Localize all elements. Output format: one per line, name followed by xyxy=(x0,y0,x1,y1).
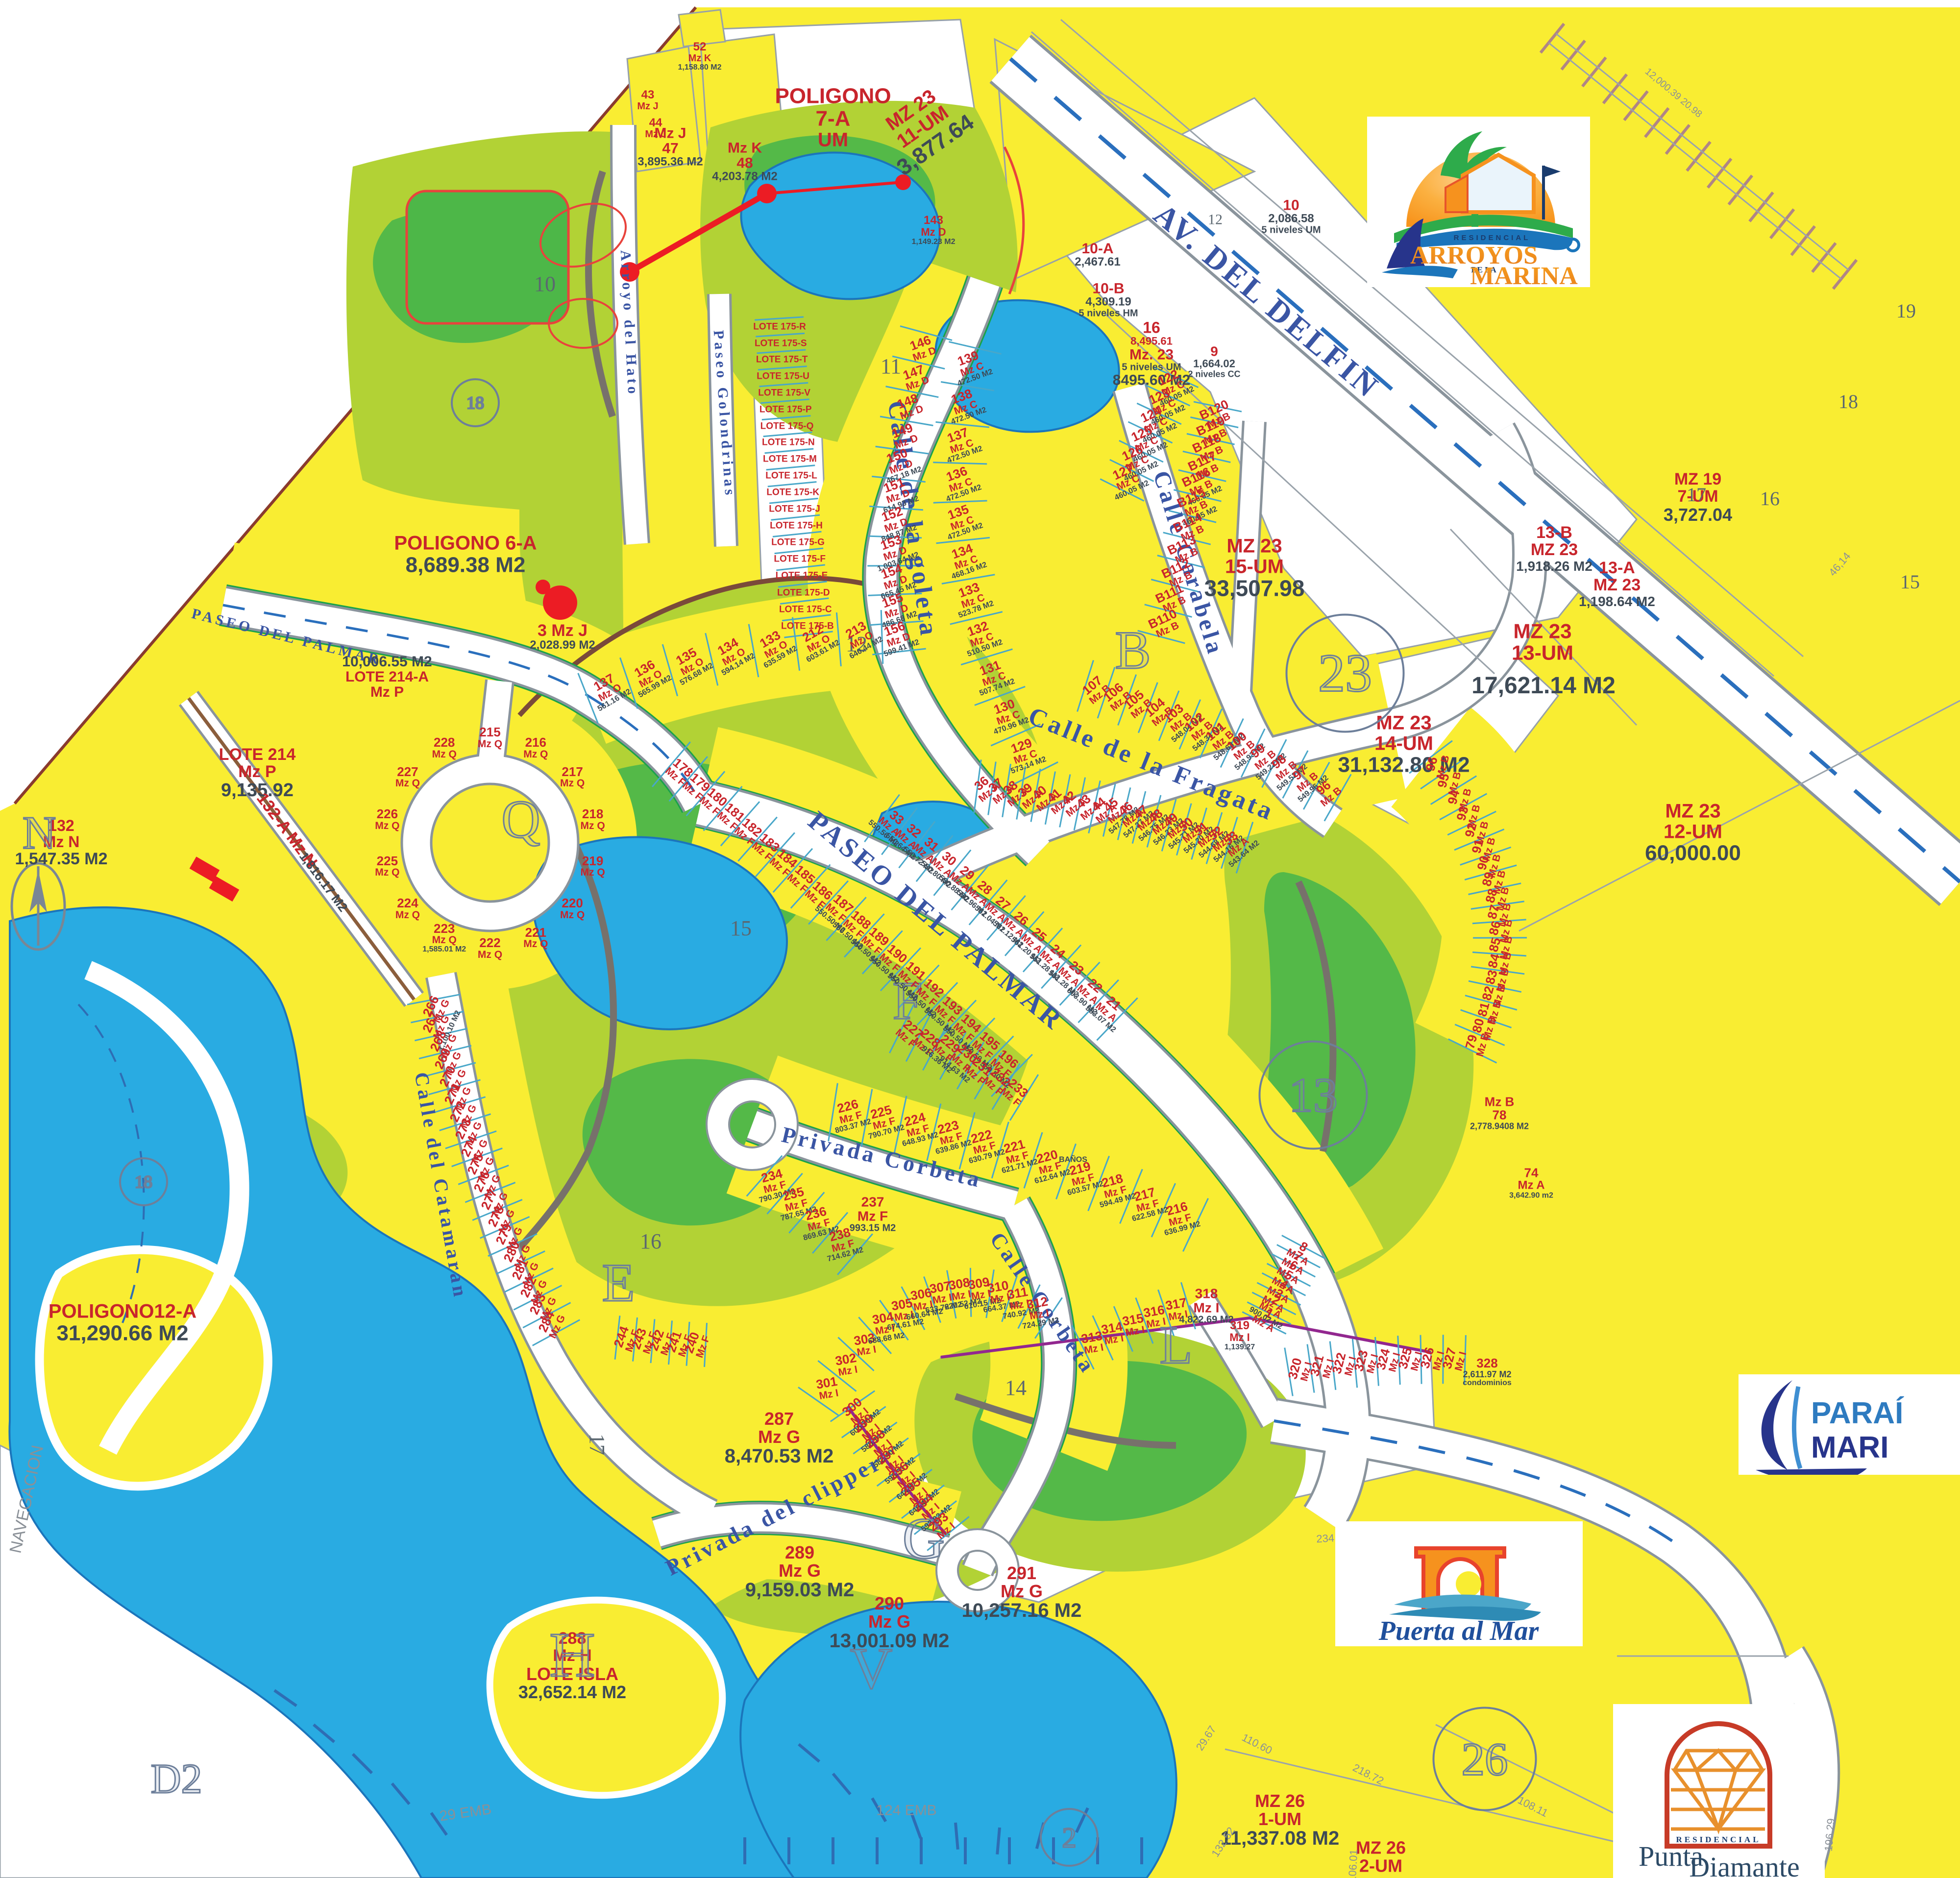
logo-arroyos-de-la-marina: RESIDENCIAL ARROYOS DE LA MARINA xyxy=(1367,117,1590,287)
map-label: 289Mz G9,159.03 M2 xyxy=(745,1543,854,1600)
lot-label: 222Mz Q xyxy=(478,936,502,960)
section-letter: V xyxy=(850,1639,893,1698)
map-label: 15 xyxy=(1900,572,1920,592)
lot-divider xyxy=(771,515,819,520)
lot-label: LOTE 175-J xyxy=(769,505,820,514)
lot-divider xyxy=(758,366,807,370)
lot-label: LOTE 175-V xyxy=(758,388,810,397)
lot-divider xyxy=(763,432,812,436)
railroad-rail xyxy=(1556,34,1849,270)
map-label: POLIGONO7-AUM xyxy=(775,85,891,150)
marina-text: MARI xyxy=(1811,1431,1888,1464)
railroad-tick xyxy=(1750,193,1773,221)
lot-label: LOTE 175-E xyxy=(776,571,828,581)
map-label: Mz B782,778.9408 M2 xyxy=(1470,1096,1529,1131)
lot-label: 217Mz Q xyxy=(560,765,585,789)
lot-label: 219Mz Q xyxy=(581,854,605,878)
lot-label: LOTE 175-P xyxy=(759,405,812,414)
pier-tick xyxy=(353,1754,372,1773)
lot-divider xyxy=(768,482,817,487)
map-label: 106.01 xyxy=(1347,1849,1360,1878)
lot-divider xyxy=(765,449,814,453)
map-label: 52Mz K1,158.80 M2 xyxy=(678,41,722,72)
lot-divider xyxy=(780,598,829,604)
lot-divider xyxy=(759,383,808,387)
diamante-text: Diamante xyxy=(1689,1851,1799,1878)
map-label: MZ 2313-UM xyxy=(1512,620,1573,663)
section-letter: E xyxy=(602,1256,635,1310)
lot-label: LOTE 175-Q xyxy=(760,421,814,431)
lot-divider xyxy=(760,399,809,403)
map-label: 10-A2,467.61 xyxy=(1075,241,1120,268)
lot-divider xyxy=(933,501,987,503)
lot-label: LOTE 175-F xyxy=(774,555,826,564)
lot-label: LOTE 175-C xyxy=(779,605,832,614)
railroad-tick xyxy=(1562,41,1585,70)
railroad-tick xyxy=(1833,260,1857,289)
pier-tick xyxy=(833,1774,850,1794)
logo-puerta-al-mar: Puerta al Mar xyxy=(1335,1521,1583,1646)
map-label: 10 xyxy=(534,273,556,295)
map-label: 17,621.14 M2 xyxy=(1471,674,1616,698)
map-label: 10,006.55 M2LOTE 214-AMz P xyxy=(342,654,432,700)
map-label: 19 xyxy=(1896,301,1916,321)
lot-label: LOTE 175-L xyxy=(765,471,817,481)
railroad-tick xyxy=(1791,226,1815,255)
lot-label: 314Mz I xyxy=(1101,1320,1126,1347)
lot-label: 220Mz Q xyxy=(560,897,585,920)
railroad-tick xyxy=(1603,74,1627,103)
map-label: 12 xyxy=(1208,212,1223,227)
map-label: MZ 262-UM xyxy=(1356,1839,1406,1876)
lot-divider xyxy=(755,317,804,320)
lot-label: 226Mz Q xyxy=(375,807,399,831)
lot-label: LOTE 175-U xyxy=(757,371,809,381)
lot-divider xyxy=(773,532,821,537)
map-label: POLIGONO12-A31,290.66 M2 xyxy=(49,1301,196,1344)
railroad-tick xyxy=(1770,209,1794,238)
map-label: 16 xyxy=(1760,488,1780,509)
puerta-al-mar-text: Puerta al Mar xyxy=(1378,1616,1540,1646)
lot-divider xyxy=(933,463,987,464)
lot-label: 215Mz Q xyxy=(478,726,502,749)
logo-residencial-text: RESIDENCIAL xyxy=(1454,234,1531,242)
master-plan-map: AV. DEL DELFINPASEO DEL PALMARPASEO DEL … xyxy=(0,0,1960,1878)
lot-label: 221Mz Q xyxy=(523,926,548,950)
logo-marina-text: MARINA xyxy=(1470,262,1578,287)
lot-label: 216Mz Q xyxy=(523,736,548,759)
lot-label: LOTE 175-N xyxy=(762,438,815,447)
circled-number: 13 xyxy=(1259,1041,1368,1150)
map-label: 13-AMZ 231,198.64 M2 xyxy=(1579,560,1655,609)
circled-number: 18 xyxy=(451,378,500,427)
lot-label: 315Mz I xyxy=(1121,1311,1146,1338)
railroad-tick xyxy=(1624,91,1648,120)
lot-label: LOTE 175-M xyxy=(763,455,817,464)
lot-divider xyxy=(776,565,825,570)
map-label: 124 EMB xyxy=(876,1803,936,1818)
map-label: LOTE 214Mz P9,135.92 xyxy=(219,746,296,800)
map-label: Mz K484,203.78 M2 xyxy=(712,140,777,183)
section-letter: H xyxy=(549,1623,595,1687)
circled-number: 18 xyxy=(119,1157,168,1206)
lot-divider xyxy=(778,582,827,587)
railroad-tick xyxy=(1812,243,1836,272)
railroad-tick xyxy=(1666,125,1690,154)
map-label: 15 xyxy=(730,917,752,940)
lot-label: LOTE 175-R xyxy=(753,322,806,331)
section-letter: Q xyxy=(501,792,540,846)
lot-divider xyxy=(769,498,818,503)
railroad-tick xyxy=(1541,24,1564,52)
map-label: 17 xyxy=(586,1434,608,1455)
lot-label: LOTE 175-S xyxy=(755,339,807,348)
map-label: 44Mz J xyxy=(645,117,666,140)
map-label: 319Mz I1,139.27 xyxy=(1225,1320,1255,1351)
map-label: 16 xyxy=(640,1230,661,1253)
lot-label: 317Mz I xyxy=(1165,1296,1190,1323)
lot-label: 316Mz I xyxy=(1143,1303,1168,1330)
lot-label: LOTE 175-T xyxy=(756,355,808,365)
lot-label: 224Mz Q xyxy=(395,897,420,920)
lot-label: LOTE 175-B xyxy=(781,621,834,631)
lot-label: LOTE 175-K xyxy=(766,488,819,497)
section-letter: B xyxy=(1115,623,1151,677)
lot-label: LOTE 175-H xyxy=(770,521,823,531)
map-label: 18 xyxy=(1838,391,1858,412)
circled-number: 23 xyxy=(1286,614,1405,733)
map-label: 287Mz G8,470.53 M2 xyxy=(725,1410,833,1466)
map-label: 14 xyxy=(1005,1377,1027,1399)
lot-label: 301Mz I xyxy=(815,1375,840,1402)
map-label: 3282,611.97 M2condominios xyxy=(1463,1357,1512,1387)
section-letter: D2 xyxy=(150,1757,202,1800)
paraiso-text: PARAÍ xyxy=(1811,1396,1904,1430)
section-letter: N xyxy=(23,810,56,856)
map-label: 17 xyxy=(1687,485,1706,505)
railroad-rail xyxy=(1548,43,1841,279)
map-label: MZ 2315-UM33,507.98 xyxy=(1204,536,1305,600)
golf-flag-icon xyxy=(1543,166,1561,177)
map-label: 291Mz G10,257.16 M2 xyxy=(962,1564,1082,1621)
lot-label: 218Mz Q xyxy=(581,807,605,831)
map-label: 10-B4,309.195 niveles HM xyxy=(1078,281,1138,319)
railroad-tick xyxy=(1729,175,1752,204)
map-label: 91,664.022 niveles CC xyxy=(1188,344,1240,379)
sun-icon xyxy=(1456,1571,1481,1597)
railroad-tick xyxy=(1645,108,1668,137)
pier-tick xyxy=(997,1828,1000,1854)
railroad-tick xyxy=(1708,159,1731,188)
pier-tick xyxy=(274,1690,296,1706)
map-label: MZ 2312-UM60,000.00 xyxy=(1645,802,1741,865)
logo-punta-diamante: RESIDENCIAL Punta Diamante xyxy=(1613,1704,1825,1878)
map-label: 74Mz A3,642.90 m2 xyxy=(1509,1167,1553,1200)
railroad-tick xyxy=(1687,142,1711,171)
map-label: 3 Mz J2,028.99 M2 xyxy=(530,622,595,652)
pier-tick xyxy=(955,1823,958,1850)
lot-label: LOTE 175-G xyxy=(771,538,825,547)
logo-paraiso-marina: PARAÍ MARI xyxy=(1739,1374,1960,1475)
lot-divider xyxy=(756,333,805,337)
map-label: 102,086.585 niveles UM xyxy=(1261,198,1321,236)
lot-divider xyxy=(766,465,815,470)
map-label: MZ 261-UM11,337.08 M2 xyxy=(1221,1792,1339,1849)
lot-label: 225Mz Q xyxy=(375,854,399,878)
map-label: POLIGONO 6-A8,689.38 M2 xyxy=(394,533,537,576)
lot-divider xyxy=(762,416,811,420)
lot-label: LOTE 175-D xyxy=(777,588,830,597)
pier-tick xyxy=(799,1744,819,1761)
lot-label: 223Mz Q1,585.01 M2 xyxy=(422,922,466,953)
pier-tick xyxy=(314,1725,334,1742)
diamond-icon xyxy=(1671,1751,1765,1829)
map-label: 43Mz J xyxy=(637,89,658,112)
lot-label: 228Mz Q xyxy=(432,736,457,759)
lot-divider xyxy=(936,537,990,543)
lot-label: 302Mz I xyxy=(834,1351,859,1378)
lot-divider xyxy=(775,548,823,554)
map-label: 143Mz D1,149.23 M2 xyxy=(912,215,955,246)
map-label: 11 xyxy=(881,355,901,378)
pier-tick xyxy=(392,1783,409,1804)
lot-label: 227Mz Q xyxy=(395,765,420,789)
railroad-tick xyxy=(1582,57,1606,86)
circled-number: 2 xyxy=(1040,1808,1099,1867)
circled-number: 26 xyxy=(1433,1707,1537,1811)
sail-icon xyxy=(1762,1380,1792,1470)
lot-label: 312Mz I724.29 M2 xyxy=(1018,1293,1060,1330)
lot-divider xyxy=(757,350,806,353)
